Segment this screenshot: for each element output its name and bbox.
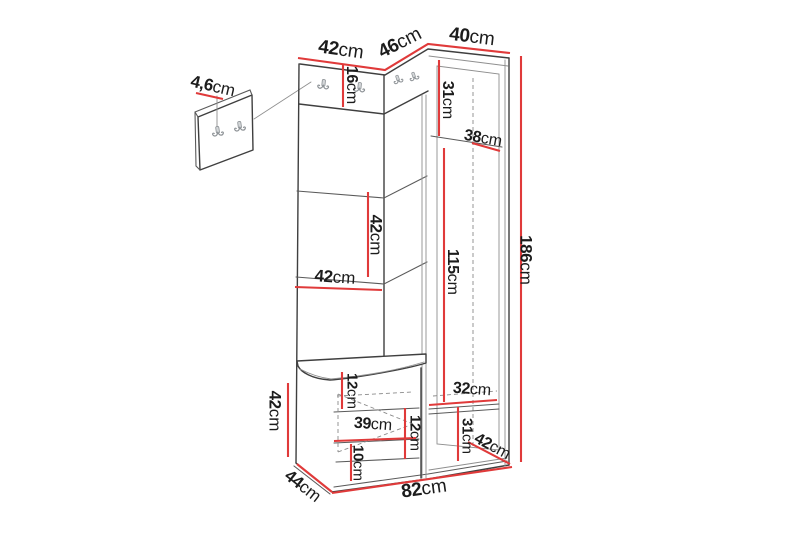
dim-unit: cm [439,98,456,119]
dim-line-bench-opening-width [334,438,416,441]
diagram-canvas: 4,6cm 42cm 46cm 40cm 16cm 31cm 38cm 42cm… [0,0,800,533]
dim-value: 42 [266,391,285,409]
dim-value: 16 [343,66,360,83]
dim-label-bench-top-clearance: 12cm [345,373,360,409]
dim-unit: cm [469,381,491,399]
dim-unit: cm [479,130,503,150]
dim-unit: cm [407,431,424,451]
dim-label-bench-bottom-clearance: 10cm [351,445,366,481]
cabinet-plinth-line [429,458,507,470]
cabinet-bottom-shelf [429,404,499,414]
dim-unit: cm [350,461,367,481]
dim-value: 12 [344,373,361,389]
dim-label-bench-right-clearance: 12cm [408,415,423,451]
dim-label-bench-opening-width: 39cm [353,416,392,435]
dim-line-compartment-width [295,287,382,290]
cabinet-top-inner-line [429,56,508,66]
dim-unit: cm [367,233,386,256]
dim-unit: cm [332,267,356,288]
dim-label-cabinet-interior-height: 115cm [444,249,460,295]
pointer-line [254,82,311,119]
dim-value: 39 [353,415,371,433]
shelf-line-upper [297,176,427,198]
dim-unit: cm [343,83,360,104]
dim-value: 31 [459,418,476,434]
dim-unit: cm [344,389,361,409]
dim-value: 31 [439,81,456,98]
dim-label-top-width-right: 40cm [448,25,496,49]
dim-line-cabinet-bottom-width [429,400,497,405]
dim-label-bench-height: 42cm [267,391,284,432]
dim-value: 32 [452,380,470,398]
dim-label-cabinet-bottom-compartment: 31cm [460,418,475,454]
dim-unit: cm [420,475,448,499]
dim-label-total-height: 186cm [518,235,535,285]
hook-panel-bottom-edge [299,91,428,114]
dim-label-cabinet-top-compartment: 31cm [439,81,455,119]
dim-value: 115 [444,249,461,274]
dim-value: 42 [314,266,333,286]
hook-icon [408,71,419,81]
dim-unit: cm [444,274,461,295]
dim-unit: cm [337,39,365,63]
dim-unit: cm [370,416,392,434]
cabinet-details [422,56,508,478]
dim-unit: cm [517,262,536,285]
dim-value: 10 [350,445,367,461]
dim-value: 12 [407,415,424,431]
dim-unit: cm [266,409,285,432]
dim-label-compartment-width: 42cm [314,267,356,287]
dim-label-middle-compartment-height: 42cm [368,215,385,256]
dim-label-hook-panel-height: 16cm [343,66,359,104]
dim-value: 42 [367,215,386,233]
unit-left-edge [296,64,299,463]
furniture-line-drawing [0,0,800,533]
dim-label-cabinet-bottom-width: 32cm [452,381,491,400]
dim-value: 186 [517,235,536,262]
dim-unit: cm [468,26,496,50]
hook-icon [392,74,403,84]
hook-icon [318,79,330,89]
